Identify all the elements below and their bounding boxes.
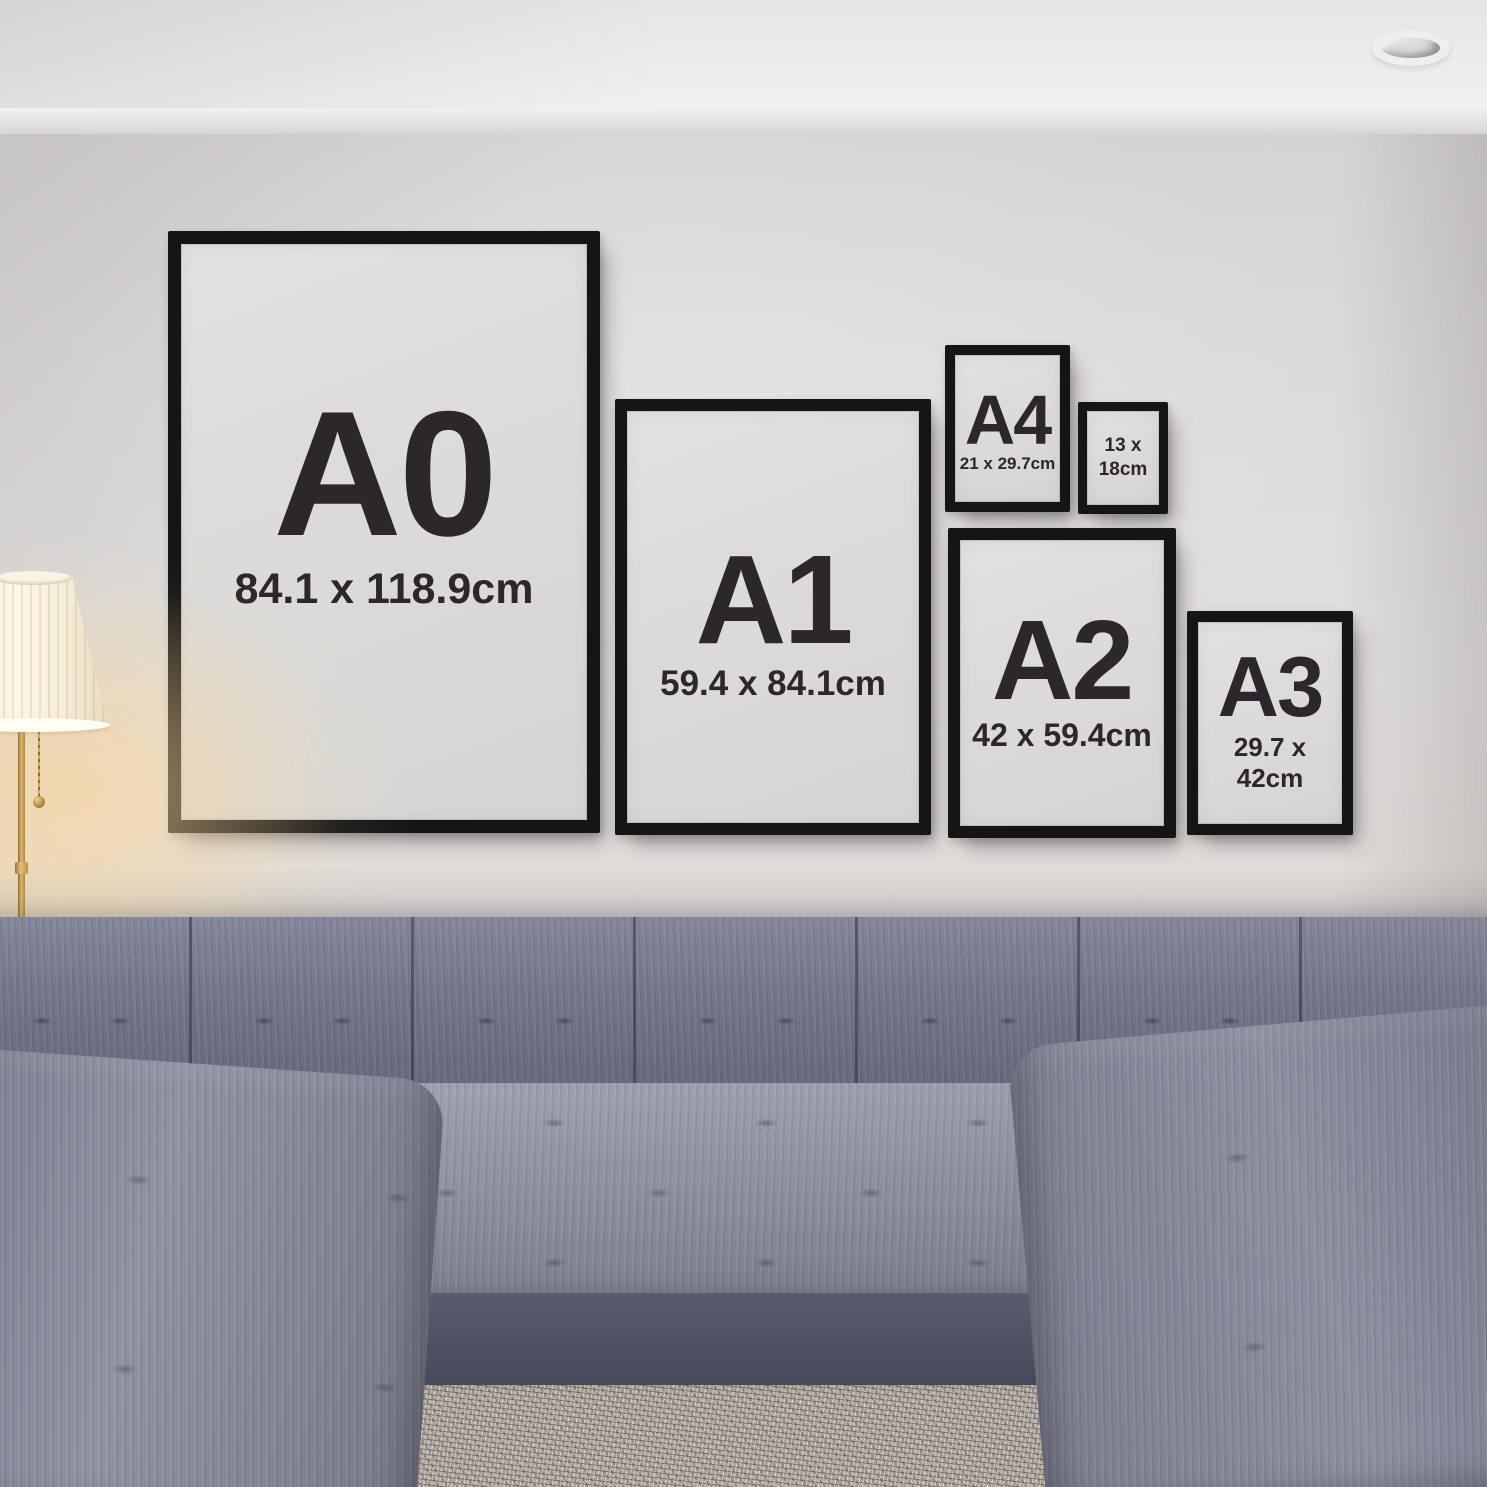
- poster-13x18: 13 x 18cm: [1087, 411, 1159, 505]
- frame-label: A2: [992, 612, 1132, 708]
- frame-size: 84.1 x 118.9cm: [235, 565, 534, 614]
- frame-label: A3: [1218, 652, 1323, 724]
- recessed-light-bulb: [1382, 38, 1440, 58]
- sofa-chaise-left: [0, 1046, 446, 1487]
- frame-size: 29.7 x 42cm: [1198, 732, 1342, 794]
- poster-a0: A0 84.1 x 118.9cm: [181, 244, 587, 820]
- lamp-shade-pleats: [0, 577, 108, 727]
- frame-a0: A0 84.1 x 118.9cm: [168, 231, 600, 833]
- lamp-pole-joint: [15, 862, 28, 874]
- frame-label: A1: [695, 546, 850, 653]
- frame-a4: A4 21 x 29.7cm: [945, 345, 1070, 512]
- lamp-pull-knob: [33, 796, 45, 808]
- frame-label: A4: [965, 391, 1050, 451]
- frame-a3: A3 29.7 x 42cm: [1187, 611, 1353, 835]
- sofa-chaise-right: [1007, 1000, 1487, 1487]
- frame-a1: A1 59.4 x 84.1cm: [615, 399, 931, 835]
- frame-13x18: 13 x 18cm: [1078, 402, 1168, 514]
- frame-size: 21 x 29.7cm: [960, 454, 1055, 474]
- poster-a2: A2 42 x 59.4cm: [960, 540, 1164, 826]
- frame-size: 42 x 59.4cm: [972, 717, 1152, 754]
- frame-size: 59.4 x 84.1cm: [660, 664, 886, 704]
- frame-a2: A2 42 x 59.4cm: [948, 528, 1176, 838]
- ceiling-wall-edge: [0, 108, 1487, 134]
- lamp-pull-chain: [38, 727, 40, 799]
- poster-a3: A3 29.7 x 42cm: [1198, 622, 1342, 824]
- sectional-sofa: [0, 905, 1487, 1487]
- frame-label: A0: [273, 398, 495, 549]
- poster-a1: A1 59.4 x 84.1cm: [627, 411, 919, 823]
- recessed-light-icon: [1372, 30, 1450, 66]
- frame-size: 13 x 18cm: [1092, 434, 1154, 482]
- living-room-scene: A0 84.1 x 118.9cm A1 59.4 x 84.1cm A4 21…: [0, 0, 1487, 1487]
- floor-lamp-shade: [0, 577, 108, 727]
- ceiling: [0, 0, 1487, 108]
- poster-a4: A4 21 x 29.7cm: [955, 355, 1060, 502]
